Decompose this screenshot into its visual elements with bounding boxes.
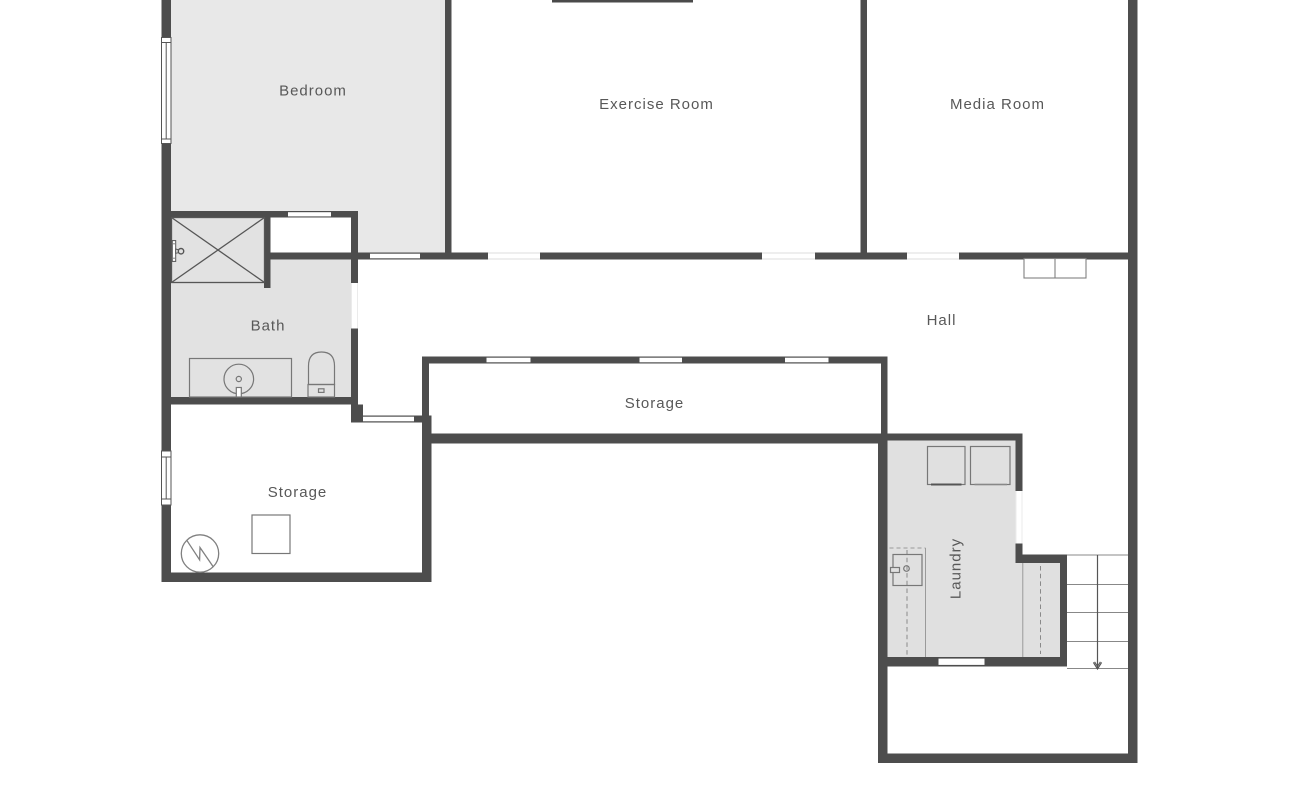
svg-text:Storage: Storage — [625, 395, 685, 412]
svg-text:Media Room: Media Room — [950, 96, 1045, 113]
svg-text:Laundry: Laundry — [948, 538, 965, 599]
svg-text:Hall: Hall — [927, 312, 957, 329]
svg-text:Exercise Room: Exercise Room — [599, 96, 714, 113]
svg-text:Storage: Storage — [268, 484, 328, 501]
svg-text:Bedroom: Bedroom — [279, 83, 347, 100]
svg-text:Bath: Bath — [251, 318, 286, 335]
